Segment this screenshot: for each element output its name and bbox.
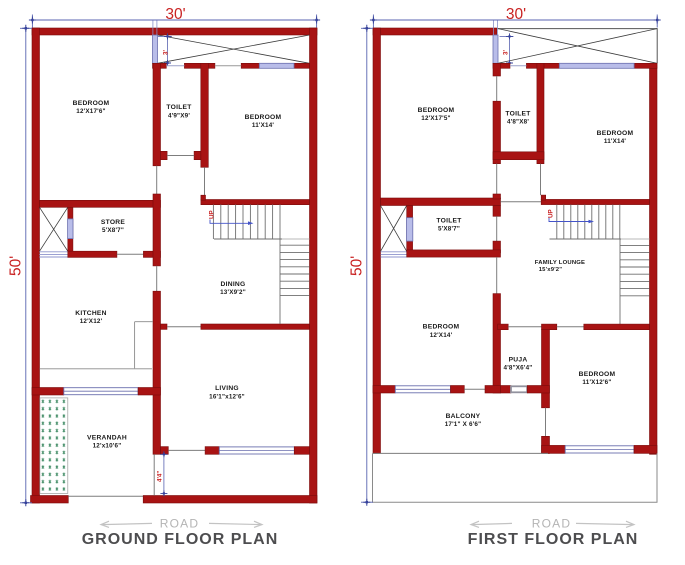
svg-text:FIRST FLOOR PLAN: FIRST FLOOR PLAN xyxy=(468,531,639,548)
svg-text:GROUND FLOOR PLAN: GROUND FLOOR PLAN xyxy=(82,531,279,548)
svg-text:UP: UP xyxy=(548,209,555,218)
svg-text:DINING: DINING xyxy=(221,281,246,288)
svg-text:30': 30' xyxy=(165,6,185,23)
svg-text:11'X14': 11'X14' xyxy=(604,138,627,145)
svg-text:11'X14': 11'X14' xyxy=(252,122,275,129)
svg-text:BEDROOM: BEDROOM xyxy=(423,324,460,331)
svg-text:12'X17'6": 12'X17'6" xyxy=(76,108,106,115)
svg-text:LIVING: LIVING xyxy=(215,385,239,392)
svg-text:12'X17'5": 12'X17'5" xyxy=(421,115,451,122)
svg-text:BALCONY: BALCONY xyxy=(446,413,481,420)
svg-text:12'x10'6": 12'x10'6" xyxy=(93,443,122,450)
svg-text:PUJA: PUJA xyxy=(509,357,528,364)
svg-text:4'4": 4'4" xyxy=(156,471,163,482)
svg-text:13'X9'2": 13'X9'2" xyxy=(220,289,246,296)
svg-text:12'X14': 12'X14' xyxy=(430,332,453,339)
svg-text:4'8"X8': 4'8"X8' xyxy=(507,119,529,126)
svg-text:5'X8'7": 5'X8'7" xyxy=(438,226,460,233)
svg-text:TOILET: TOILET xyxy=(166,104,192,111)
svg-text:30': 30' xyxy=(506,6,526,23)
svg-text:STORE: STORE xyxy=(101,219,125,226)
svg-text:ROAD: ROAD xyxy=(160,517,199,531)
svg-text:BEDROOM: BEDROOM xyxy=(579,371,616,378)
svg-text:50': 50' xyxy=(8,256,25,276)
svg-text:BEDROOM: BEDROOM xyxy=(73,100,110,107)
svg-text:BEDROOM: BEDROOM xyxy=(597,130,634,137)
svg-text:12'X12': 12'X12' xyxy=(80,318,103,325)
svg-text:BEDROOM: BEDROOM xyxy=(418,107,455,114)
svg-text:3': 3' xyxy=(163,50,170,55)
svg-text:50': 50' xyxy=(349,256,366,276)
svg-text:3': 3' xyxy=(503,50,510,55)
svg-text:4'8"X6'4": 4'8"X6'4" xyxy=(504,365,533,372)
svg-text:16'1"x12'6": 16'1"x12'6" xyxy=(209,393,245,400)
svg-text:5'X8'7": 5'X8'7" xyxy=(102,227,124,234)
svg-text:BEDROOM: BEDROOM xyxy=(245,114,282,121)
svg-text:ROAD: ROAD xyxy=(532,517,571,531)
svg-text:TOILET: TOILET xyxy=(436,218,462,225)
svg-text:17'1" X 6'6": 17'1" X 6'6" xyxy=(445,421,482,428)
svg-text:11'X12'6": 11'X12'6" xyxy=(582,379,611,386)
svg-text:TOILET: TOILET xyxy=(505,111,531,118)
svg-text:4'9"X9': 4'9"X9' xyxy=(168,112,190,119)
svg-text:15'x9'2": 15'x9'2" xyxy=(539,267,563,273)
svg-text:KITCHEN: KITCHEN xyxy=(75,310,106,317)
svg-text:FAMILY LOUNGE: FAMILY LOUNGE xyxy=(535,260,585,266)
svg-text:UP: UP xyxy=(209,210,216,219)
svg-text:VERANDAH: VERANDAH xyxy=(87,435,127,442)
